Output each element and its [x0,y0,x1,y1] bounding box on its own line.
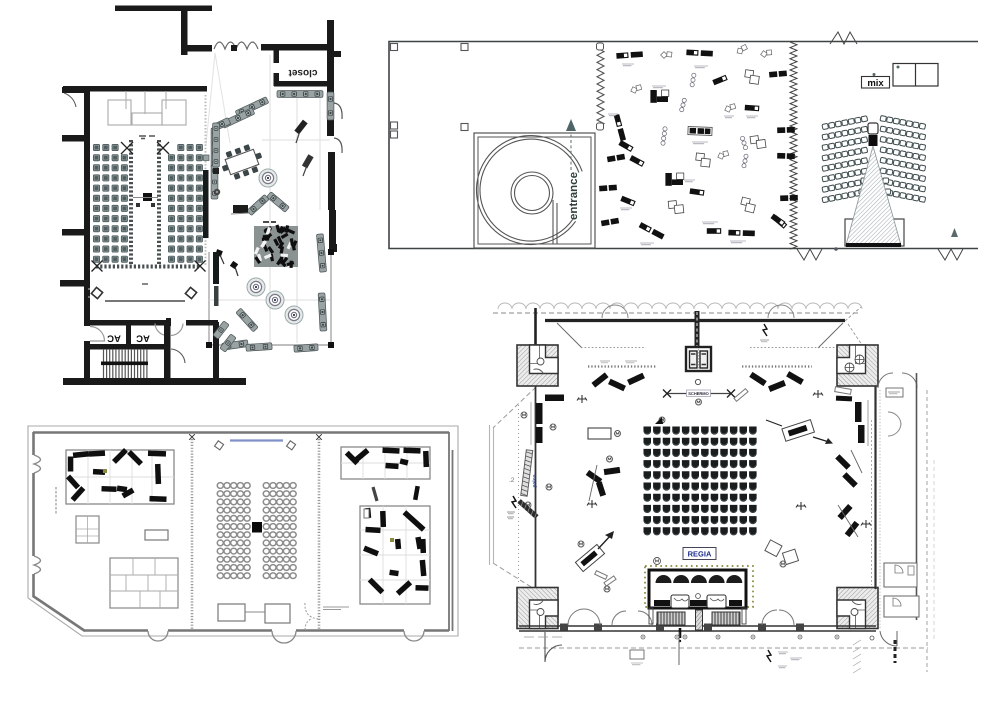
svg-text:mix: mix [867,78,884,89]
svg-text:REGIA: REGIA [688,550,712,559]
svg-text:SCHERMO: SCHERMO [688,391,708,396]
svg-text:AC: AC [107,333,121,344]
svg-text:palco: palco [532,474,538,487]
svg-text:AC: AC [136,333,150,344]
svg-text:entrance: entrance [568,172,580,220]
svg-text:.2: .2 [509,477,515,484]
svg-text:closet: closet [288,67,318,78]
